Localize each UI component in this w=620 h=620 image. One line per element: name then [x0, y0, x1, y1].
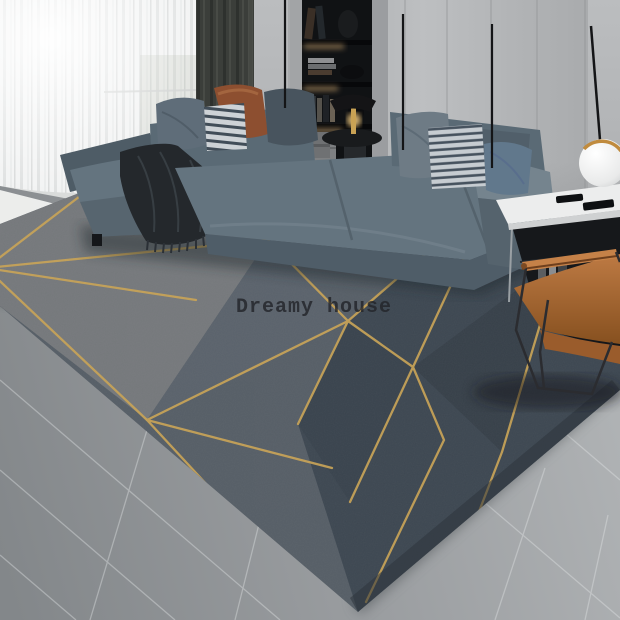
- pillow-striped: [428, 124, 486, 189]
- pillow-slate: [264, 88, 318, 145]
- product-photo: Dreamy house: [0, 0, 620, 620]
- pillow-striped: [204, 103, 247, 151]
- living-room-scene: [0, 0, 620, 620]
